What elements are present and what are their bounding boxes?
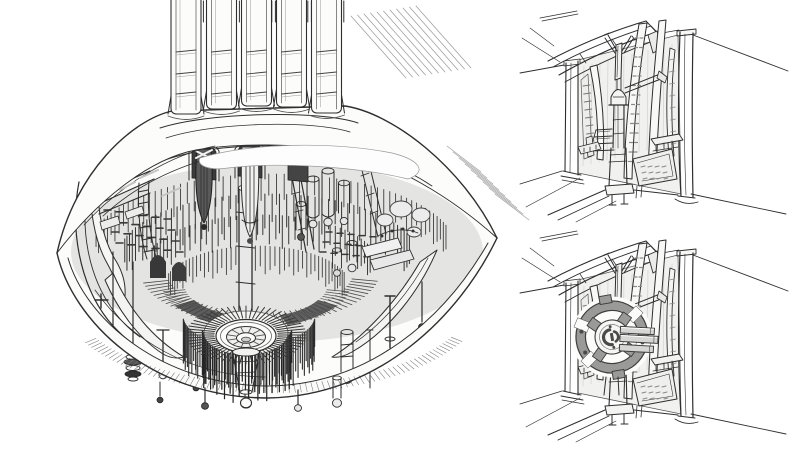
emblem-bars (619, 326, 658, 352)
wall-alcove-sketch (520, 11, 788, 222)
sketch-sheet (0, 0, 800, 450)
sketch-sheet-svg (0, 0, 800, 450)
column-pillars (168, 0, 345, 120)
engine-core-sketch (57, 0, 529, 411)
ribbed-column (168, 0, 345, 120)
wall-alcove-emblem-sketch (520, 231, 788, 442)
